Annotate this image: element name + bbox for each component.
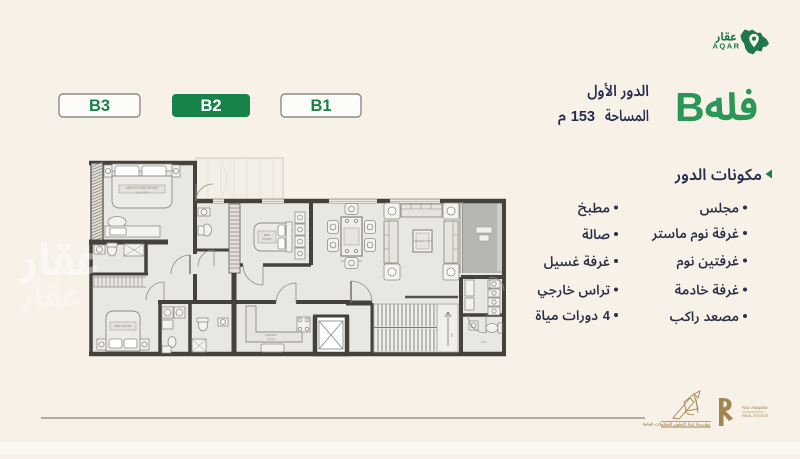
svg-text:BED ROOM: BED ROOM [115, 324, 132, 328]
svg-text:MASTER BED ROOM: MASTER BED ROOM [126, 186, 158, 190]
svg-text:ROOM: ROOM [263, 237, 272, 241]
svg-text:REAL ESTATE: REAL ESTATE [742, 413, 769, 418]
svg-text:B2: B2 [200, 97, 221, 115]
svg-text:UP: UP [450, 333, 454, 337]
svg-text:B1: B1 [310, 97, 331, 115]
svg-text:RECEPTION: RECEPTION [414, 239, 431, 243]
svg-text:Raz Alaqaria: Raz Alaqaria [742, 405, 768, 410]
svg-text:AQAR: AQAR [713, 41, 741, 50]
svg-text:W.C: W.C [481, 340, 486, 344]
svg-text:DRIVER: DRIVER [265, 333, 277, 337]
svg-text:153: 153 [571, 109, 595, 125]
svg-text:4.20 x 3.95: 4.20 x 3.95 [136, 191, 149, 195]
svg-text:B3: B3 [89, 97, 110, 115]
svg-text:4: 4 [603, 308, 611, 323]
svg-text:ROOM: ROOM [267, 337, 275, 341]
svg-text:B: B [675, 84, 705, 130]
